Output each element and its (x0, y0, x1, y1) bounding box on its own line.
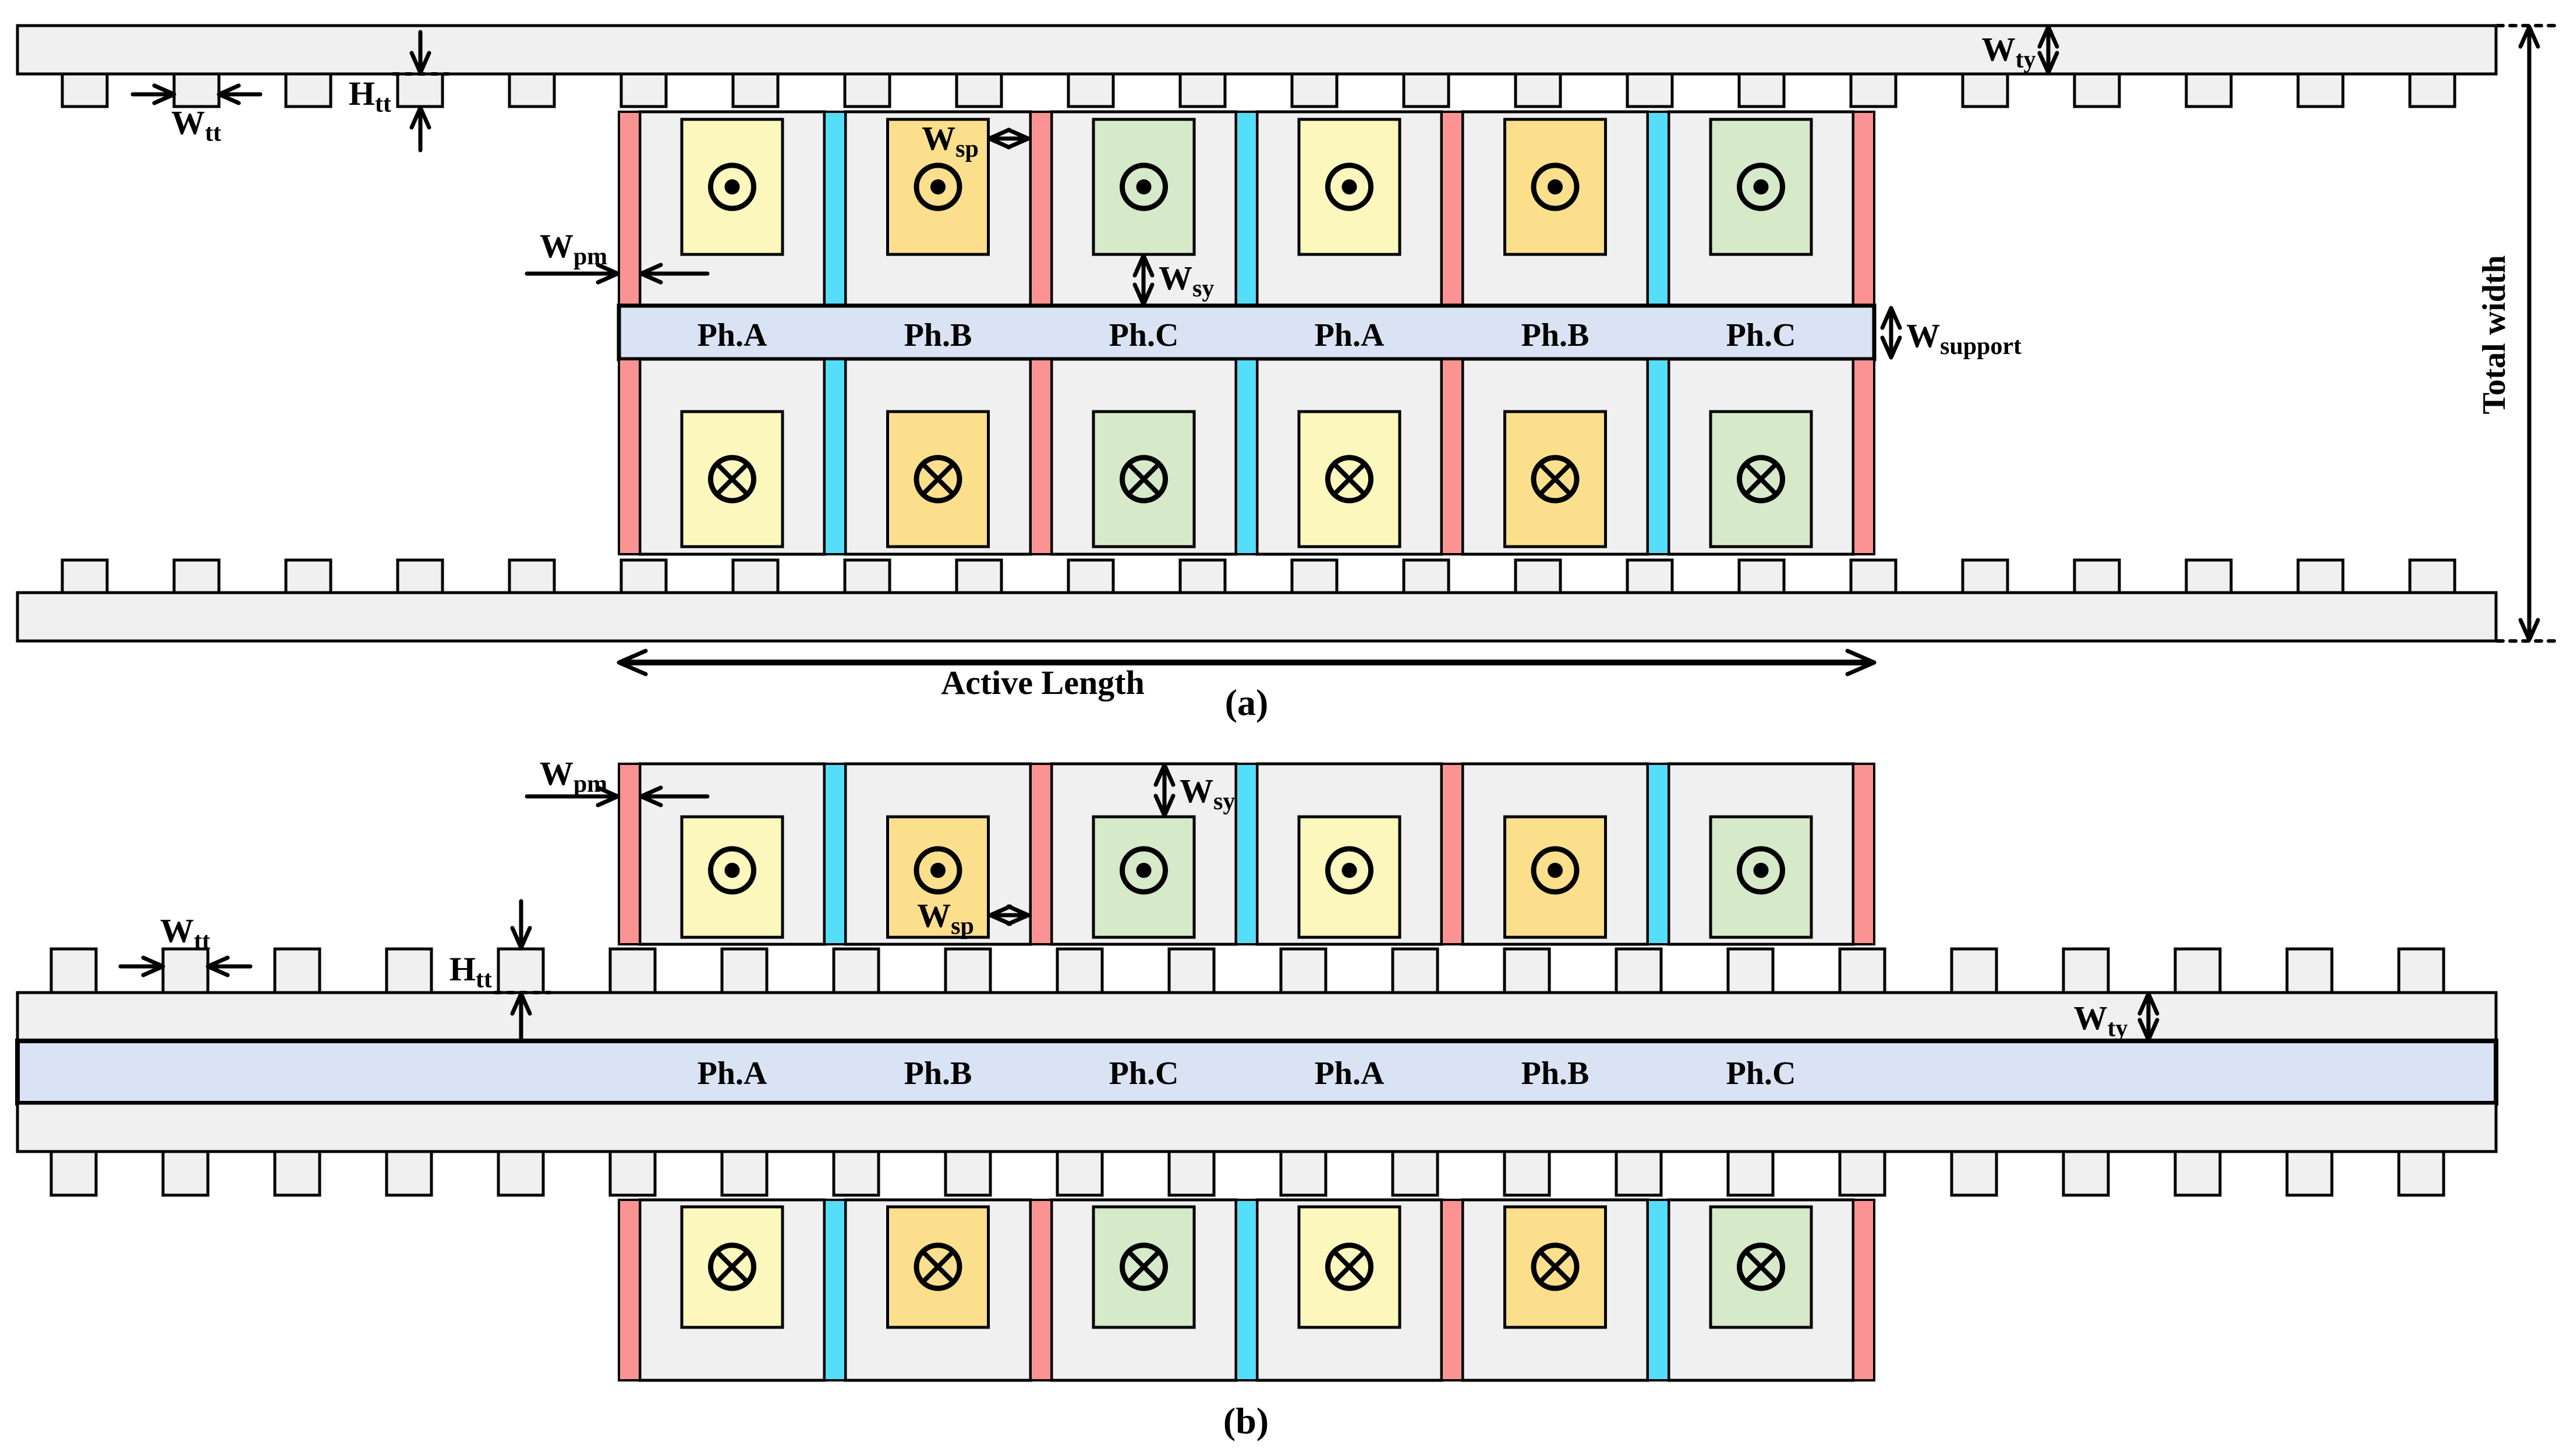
rail-tooth (1952, 1152, 1996, 1195)
dim-label-sub: ty (2016, 47, 2036, 73)
rail-tooth (1616, 1152, 1661, 1195)
bottom-rail (17, 560, 2496, 641)
rail-tooth (610, 949, 655, 993)
diagram-b: Ph.APh.BPh.CPh.APh.BPh.CWpmWsyWspWttHttW… (17, 754, 2496, 1441)
rail-tooth (1393, 1152, 1438, 1195)
dim-label-main: W (922, 119, 955, 157)
rail-tooth (722, 1152, 767, 1195)
rail-tooth (834, 949, 879, 993)
phase-label: Ph.A (1315, 317, 1385, 353)
current-out-dot (930, 179, 946, 194)
rail-tooth (1169, 1152, 1214, 1195)
spacer-strip (1648, 764, 1669, 944)
current-out-dot (1342, 179, 1357, 194)
dim-label-main: W (160, 912, 194, 950)
phase-label: Ph.B (904, 1055, 972, 1092)
dim-label-main: W (1180, 772, 1213, 810)
rail-tooth (1952, 949, 1996, 993)
dim-label-sub: tt (194, 928, 210, 955)
mover-bottom (619, 359, 1874, 554)
current-out-dot (1754, 179, 1769, 194)
rail-tooth (1292, 560, 1337, 593)
rail-tooth (1840, 1152, 1885, 1195)
rail-tooth (163, 949, 208, 993)
current-out-dot (1548, 863, 1563, 878)
rail-tooth (387, 949, 431, 993)
rail-tooth (286, 74, 331, 107)
rail-tooth (2298, 74, 2343, 107)
magnet-strip (1442, 1200, 1463, 1380)
spacer-strip (824, 359, 845, 554)
magnet-strip (1853, 359, 1874, 554)
phase-label: Ph.C (1726, 1055, 1796, 1092)
rail-tooth (2287, 1152, 2332, 1195)
rail-tooth (2186, 74, 2231, 107)
rail-tooth (733, 560, 778, 593)
rail-tooth (1068, 560, 1113, 593)
rail-tooth (1057, 1152, 1102, 1195)
magnet-strip (619, 359, 640, 554)
dim-label-wtt: Wtt (160, 912, 210, 955)
dim-label-main: W (171, 104, 205, 141)
dim-label-htt: Htt (449, 950, 492, 993)
rail-tooth (946, 949, 990, 993)
phase-label: Ph.A (698, 317, 767, 353)
dim-label-sub: tt (476, 966, 492, 993)
rail-tooth (1739, 560, 1784, 593)
dim-label-sub: tt (205, 120, 221, 147)
mover-top (619, 112, 1874, 306)
magnet-strip (619, 1200, 640, 1380)
rail-tooth (2075, 74, 2119, 107)
rail-tooth (398, 560, 442, 593)
magnet-strip (1442, 112, 1463, 306)
rail-tooth (2186, 560, 2231, 593)
rail-tooth (2075, 560, 2119, 593)
spacer-strip (1236, 112, 1257, 306)
rail-tooth (62, 74, 107, 107)
phase-label: Ph.C (1109, 1055, 1179, 1092)
magnet-strip (1031, 359, 1052, 554)
rail-tooth (1169, 949, 1214, 993)
support-bar (619, 306, 1874, 359)
caption-b: (b) (1223, 1400, 1269, 1441)
rail-tooth (509, 560, 554, 593)
rail-tooth (1739, 74, 1784, 107)
magnet-strip (1442, 764, 1463, 944)
dim-label-wtt: Wtt (171, 104, 221, 147)
rail-tooth (1963, 74, 2008, 107)
rail-tooth (275, 1152, 320, 1195)
rail-tooth (2063, 949, 2108, 993)
dim-label-wpm: Wpm (540, 754, 607, 798)
rail-yoke (17, 26, 2496, 74)
rail-tooth (957, 74, 1001, 107)
rail-tooth (2298, 560, 2343, 593)
rail-tooth (1180, 74, 1225, 107)
rail-tooth (2287, 949, 2332, 993)
current-out-dot (930, 863, 946, 878)
rail-tooth (957, 560, 1001, 593)
magnet-strip (1853, 112, 1874, 306)
magnet-strip (619, 764, 640, 944)
rail-tooth (1627, 74, 1672, 107)
rail-tooth (2410, 560, 2455, 593)
spacer-strip (1648, 359, 1669, 554)
support-band (17, 1041, 2496, 1103)
rail-tooth (2410, 74, 2455, 107)
rail-tooth (1281, 949, 1326, 993)
topology-figure: Ph.APh.BPh.CPh.APh.BPh.CWttHttWtyWpmWspW… (0, 0, 2563, 1456)
phase-label: Ph.C (1726, 317, 1796, 353)
spacer-strip (1648, 1200, 1669, 1380)
dim-label-main: W (1159, 259, 1192, 297)
rail-tooth (834, 1152, 879, 1195)
caption-a: (a) (1225, 682, 1269, 723)
current-out-dot (1754, 863, 1769, 878)
rail-tooth (1068, 74, 1113, 107)
rail-tooth (275, 949, 320, 993)
rail-tooth (1504, 1152, 1549, 1195)
dim-label-sub: sp (955, 136, 979, 162)
dim-label-main: W (540, 227, 574, 265)
dim-label-sub: tt (375, 91, 391, 118)
rail-tooth (1292, 74, 1337, 107)
dim-label-sub: support (1940, 333, 2022, 360)
rail-tooth (1627, 560, 1672, 593)
total-width-label: Total width (2476, 255, 2512, 414)
current-out-dot (1342, 863, 1357, 878)
current-out-dot (1137, 179, 1152, 194)
magnet-strip (1031, 764, 1052, 944)
rail-tooth (2399, 1152, 2444, 1195)
dim-label-sub: sy (1213, 788, 1235, 815)
rail-tooth (1616, 949, 1661, 993)
rail-tooth (1840, 949, 1885, 993)
rail-tooth (946, 1152, 990, 1195)
magnet-strip (619, 112, 640, 306)
rail-tooth (621, 74, 666, 107)
phase-label: Ph.A (1315, 1055, 1385, 1092)
rail-tooth (1281, 1152, 1326, 1195)
rail-yoke (17, 1103, 2496, 1152)
rail-tooth (2175, 1152, 2220, 1195)
dim-label-main: W (1906, 317, 1940, 355)
magnet-strip (1853, 764, 1874, 944)
current-out-dot (1548, 179, 1563, 194)
mid-rail (17, 949, 2496, 1195)
rail-tooth (174, 560, 219, 593)
dim-label-main: W (917, 897, 951, 934)
rail-tooth (1516, 560, 1560, 593)
dim-label-sub: ty (2108, 1015, 2128, 1042)
magnet-strip (1853, 1200, 1874, 1380)
rail-yoke (17, 593, 2496, 641)
dim-label-main: W (540, 754, 574, 792)
rail-tooth (498, 1152, 543, 1195)
rail-tooth (1393, 949, 1438, 993)
rail-tooth (51, 1152, 96, 1195)
dim-label-wsupport: Wsupport (1906, 317, 2022, 360)
rail-tooth (2063, 1152, 2108, 1195)
rail-tooth (845, 74, 890, 107)
rail-tooth (621, 560, 666, 593)
current-out-dot (725, 863, 740, 878)
magnet-strip (1442, 359, 1463, 554)
dim-label-sub: sy (1192, 275, 1214, 302)
rail-tooth (498, 949, 543, 993)
rail-tooth (509, 74, 554, 107)
spacer-strip (1648, 112, 1669, 306)
active-length-label: Active Length (941, 664, 1145, 702)
rail-tooth (2399, 949, 2444, 993)
rail-tooth (1963, 560, 2008, 593)
figure-stage: Ph.APh.BPh.CPh.APh.BPh.CWttHttWtyWpmWspW… (0, 0, 2563, 1456)
rail-tooth (398, 74, 442, 107)
phase-label: Ph.A (698, 1055, 767, 1092)
rail-tooth (51, 949, 96, 993)
phase-label: Ph.B (1521, 317, 1590, 353)
mover-bottom (619, 1200, 1874, 1380)
spacer-strip (824, 764, 845, 944)
magnet-strip (1031, 1200, 1052, 1380)
spacer-strip (824, 1200, 845, 1380)
rail-tooth (722, 949, 767, 993)
rail-tooth (1404, 74, 1449, 107)
current-out-dot (1137, 863, 1152, 878)
spacer-strip (1236, 1200, 1257, 1380)
rail-tooth (1504, 949, 1549, 993)
rail-tooth (1180, 560, 1225, 593)
mover-top (619, 764, 1874, 944)
rail-tooth (387, 1152, 431, 1195)
spacer-strip (1236, 359, 1257, 554)
rail-tooth (1728, 1152, 1773, 1195)
rail-tooth (2175, 949, 2220, 993)
rail-tooth (733, 74, 778, 107)
dim-label-main: W (2074, 999, 2108, 1037)
phase-label: Ph.B (1521, 1055, 1590, 1092)
dim-label-main: H (449, 950, 476, 988)
rail-tooth (1851, 560, 1896, 593)
phase-label: Ph.B (904, 317, 972, 353)
rail-tooth (174, 74, 219, 107)
rail-tooth (62, 560, 107, 593)
rail-tooth (1404, 560, 1449, 593)
current-out-dot (725, 179, 740, 194)
phase-label: Ph.C (1109, 317, 1179, 353)
spacer-strip (1236, 764, 1257, 944)
rail-tooth (1516, 74, 1560, 107)
rail-tooth (163, 1152, 208, 1195)
dim-label-htt: Htt (349, 75, 391, 118)
dim-label-main: W (1982, 30, 2016, 68)
rail-tooth (845, 560, 890, 593)
rail-tooth (1851, 74, 1896, 107)
magnet-strip (1031, 112, 1052, 306)
rail-tooth (610, 1152, 655, 1195)
rail-tooth (1728, 949, 1773, 993)
rail-tooth (1057, 949, 1102, 993)
dim-label-main: H (349, 75, 375, 112)
dim-label-sub: sp (951, 913, 974, 940)
rail-tooth (286, 560, 331, 593)
dim-label-sub: pm (574, 771, 607, 798)
spacer-strip (824, 112, 845, 306)
diagram-a: Ph.APh.BPh.CPh.APh.BPh.CWttHttWtyWpmWspW… (17, 26, 2557, 723)
